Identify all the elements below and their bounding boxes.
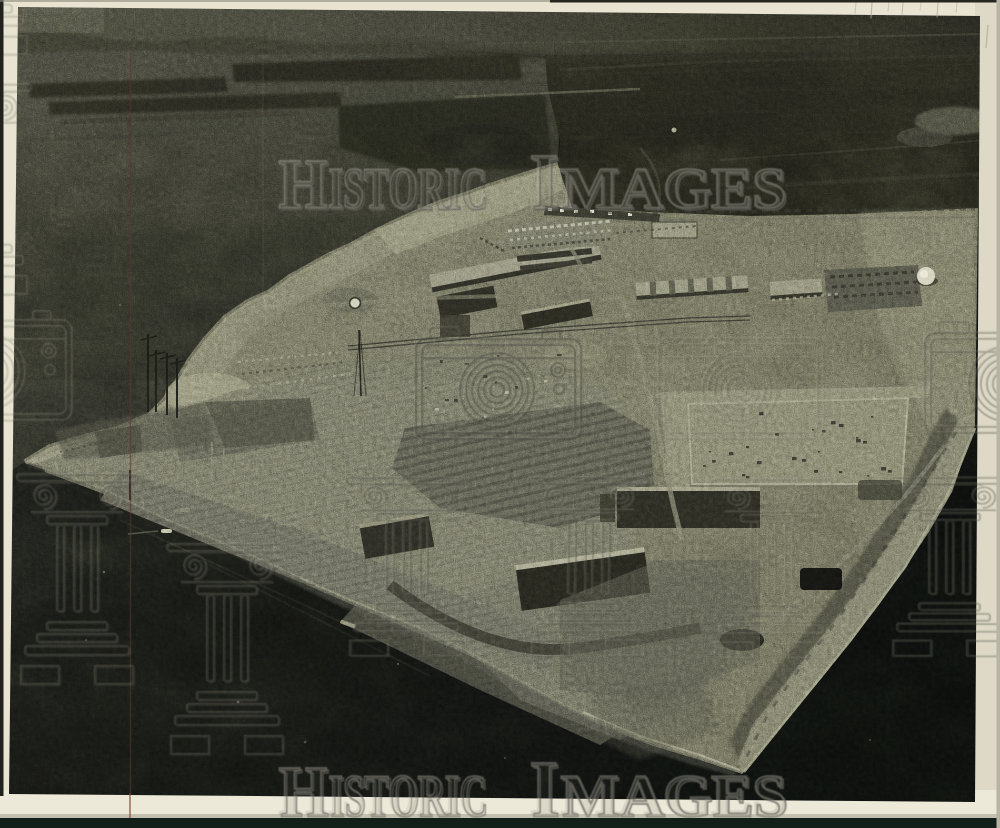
svg-text:H: H <box>280 147 329 225</box>
svg-text:I: I <box>531 139 560 226</box>
svg-text:ISTORIC: ISTORIC <box>330 157 488 222</box>
svg-text:MAGES: MAGES <box>562 157 788 222</box>
